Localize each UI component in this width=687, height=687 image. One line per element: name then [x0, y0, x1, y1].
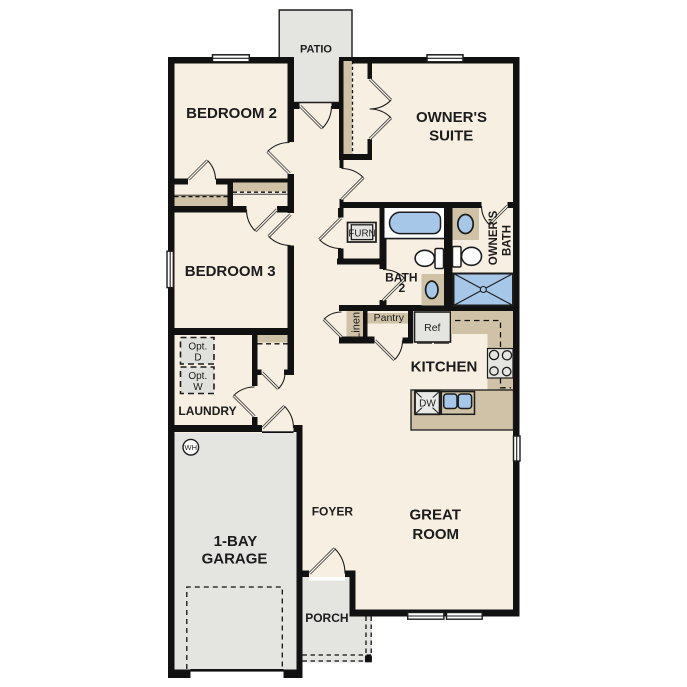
- svg-text:GREAT: GREAT: [410, 507, 461, 524]
- svg-text:ROOM: ROOM: [412, 526, 459, 543]
- svg-text:FURN: FURN: [348, 228, 375, 239]
- svg-text:FOYER: FOYER: [312, 504, 354, 518]
- svg-text:Opt.: Opt.: [188, 342, 207, 353]
- svg-text:BEDROOM 2: BEDROOM 2: [186, 105, 277, 122]
- svg-text:W: W: [193, 382, 203, 393]
- svg-text:PORCH: PORCH: [305, 611, 348, 625]
- svg-text:2: 2: [398, 281, 405, 295]
- svg-text:Ref: Ref: [424, 322, 440, 334]
- svg-text:KITCHEN: KITCHEN: [411, 359, 478, 376]
- svg-text:WH: WH: [185, 443, 198, 452]
- svg-text:D: D: [194, 352, 201, 363]
- svg-text:BEDROOM 3: BEDROOM 3: [185, 263, 276, 280]
- svg-text:LAUNDRY: LAUNDRY: [178, 404, 236, 418]
- svg-text:Pantry: Pantry: [374, 312, 405, 324]
- svg-text:Linen: Linen: [351, 312, 363, 339]
- svg-text:GARAGE: GARAGE: [202, 551, 268, 568]
- svg-text:DW: DW: [419, 399, 436, 410]
- svg-text:SUITE: SUITE: [429, 128, 473, 145]
- svg-text:Opt.: Opt.: [188, 371, 207, 382]
- svg-text:PATIO: PATIO: [300, 44, 332, 56]
- svg-text:1-BAY: 1-BAY: [214, 533, 258, 550]
- svg-text:OWNER'S: OWNER'S: [416, 109, 487, 126]
